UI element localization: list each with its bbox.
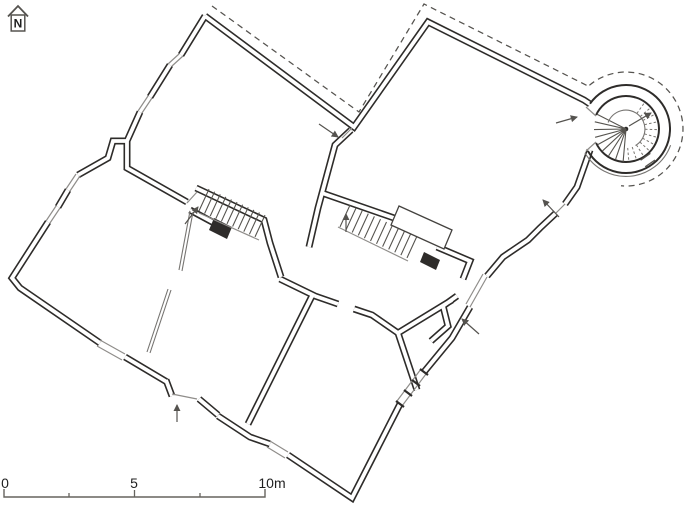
- stair-landing: [391, 206, 452, 249]
- scale-label-end: 10m: [258, 475, 285, 491]
- scale-label-start: 0: [1, 475, 9, 491]
- scale-label-middle: 5: [130, 475, 138, 491]
- floor-plan-page: N 0 5 10m: [0, 0, 689, 512]
- tower-spiral-stair: [585, 85, 671, 176]
- north-indicator: N: [8, 6, 28, 31]
- partition-strips: [147, 211, 193, 353]
- floor-plan-canvas: N 0 5 10m: [0, 0, 689, 512]
- scale-bar-ticks: [69, 490, 200, 497]
- stair-central: [338, 205, 452, 270]
- north-label: N: [14, 17, 23, 31]
- stair-central-block: [420, 252, 440, 270]
- building-walls: [12, 16, 590, 498]
- window-openings: [46, 54, 565, 458]
- scale-bar: 0 5 10m: [1, 475, 286, 497]
